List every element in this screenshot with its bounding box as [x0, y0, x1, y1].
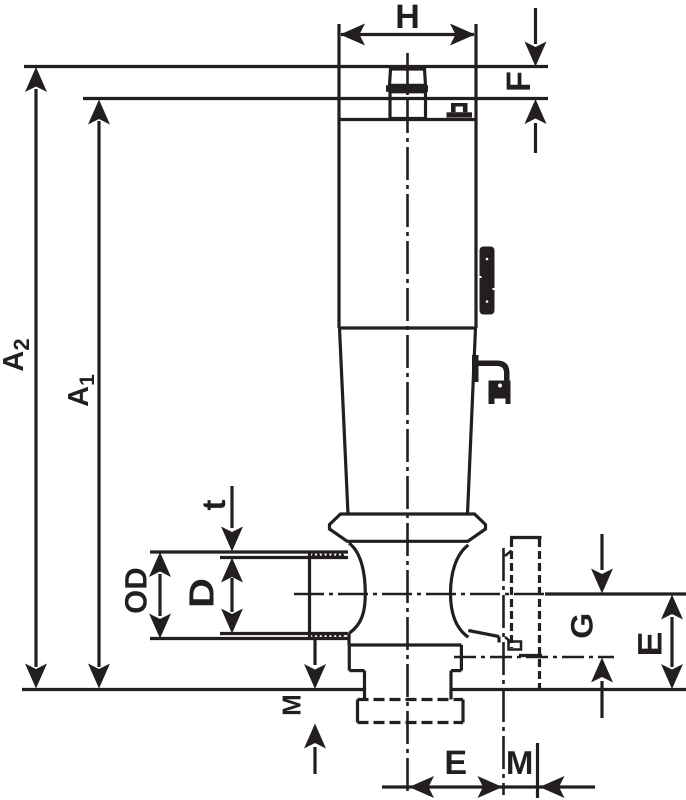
svg-text:t: t — [195, 500, 232, 511]
svg-text:G: G — [565, 613, 600, 639]
svg-text:E: E — [444, 744, 467, 782]
svg-text:E: E — [632, 632, 670, 657]
svg-text:A2: A2 — [0, 338, 34, 371]
svg-text:D: D — [183, 578, 222, 608]
svg-text:M: M — [277, 694, 307, 716]
svg-text:A1: A1 — [63, 374, 99, 407]
svg-text:OD: OD — [119, 567, 154, 614]
svg-text:F: F — [500, 71, 538, 92]
svg-text:M: M — [506, 744, 534, 781]
svg-text:H: H — [395, 0, 420, 36]
